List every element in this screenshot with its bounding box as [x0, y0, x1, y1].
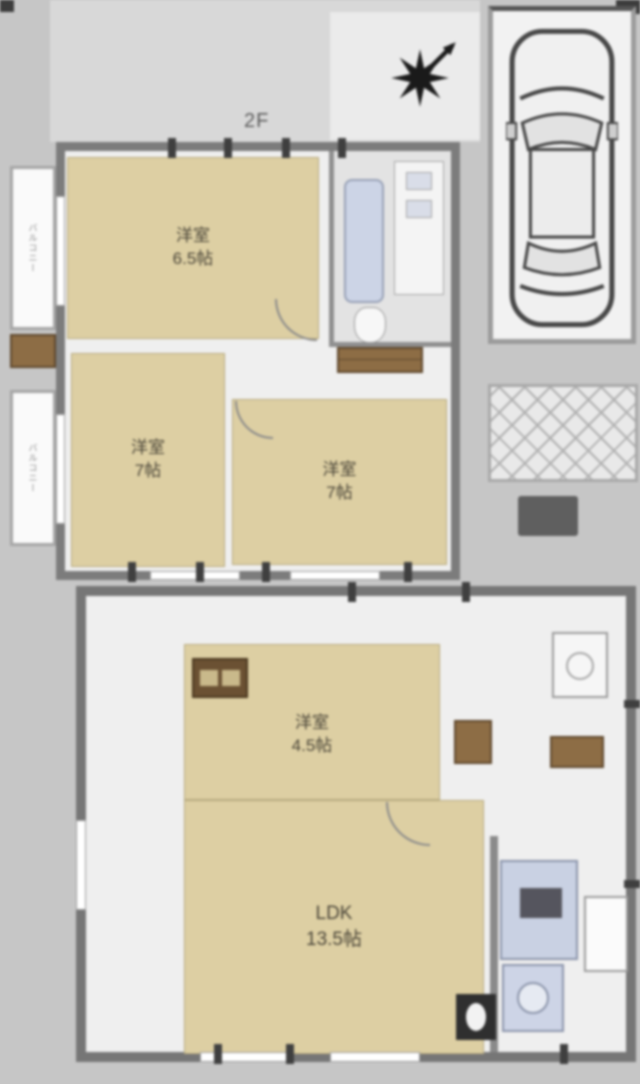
- car-top-view-icon: [506, 25, 618, 331]
- closet: [10, 334, 56, 368]
- floor1-outline: 洋室 4.5帖 LDK 13.5帖: [76, 586, 636, 1062]
- window: [76, 820, 86, 910]
- toilet: [456, 994, 496, 1040]
- compass-north-icon: [382, 40, 458, 116]
- wall-tick: [196, 562, 204, 582]
- cooktop: [520, 888, 562, 918]
- photo-corner: [0, 0, 14, 12]
- wall-tick: [128, 562, 136, 582]
- room-name: 洋室: [323, 459, 357, 482]
- wall-tick: [462, 582, 470, 602]
- balcony-label: バルコニー: [27, 443, 40, 493]
- basin: [406, 200, 432, 218]
- window: [330, 1052, 420, 1062]
- wall-tick: [168, 138, 176, 158]
- wall-tick: [338, 138, 346, 158]
- closet: [192, 658, 248, 698]
- parking-space: [488, 6, 636, 344]
- room-size: 13.5帖: [306, 927, 362, 953]
- washstand: [394, 161, 444, 295]
- wall-tick: [214, 1044, 222, 1064]
- washing-machine: [502, 964, 564, 1032]
- wall-tick: [624, 700, 640, 708]
- bathroom-zone: [329, 151, 451, 347]
- wall-tick: [282, 138, 290, 158]
- wall-tick: [404, 562, 412, 582]
- closet: [337, 347, 423, 373]
- room-bedroom-7a: 洋室 7帖: [71, 353, 225, 567]
- room-size: 7帖: [323, 482, 357, 505]
- wall-tick: [286, 1044, 294, 1064]
- wall-tick: [560, 1044, 568, 1064]
- door: [584, 896, 628, 972]
- room-label: LDK 13.5帖: [306, 901, 362, 952]
- room-size: 4.5帖: [292, 735, 333, 758]
- floor2-outline: 洋室 6.5帖 洋室 7帖 洋室 7帖: [56, 142, 460, 580]
- room-name: 洋室: [131, 437, 165, 460]
- balcony: バルコニー: [10, 166, 56, 330]
- shoe-cabinet: [550, 736, 604, 768]
- room-name: LDK: [306, 901, 362, 927]
- room-size: 7帖: [131, 460, 165, 483]
- balcony-label: バルコニー: [27, 223, 40, 273]
- wall-tick: [262, 562, 270, 582]
- window: [290, 571, 380, 580]
- window: [56, 414, 65, 524]
- room-size: 6.5帖: [173, 248, 214, 271]
- room-label: 洋室 4.5帖: [292, 712, 333, 758]
- wall-tick: [624, 880, 640, 888]
- entrance-approach-tiles: [488, 384, 638, 482]
- floor2-label: 2F: [244, 110, 269, 133]
- room-name: 洋室: [292, 712, 333, 735]
- wall-tick: [348, 582, 356, 602]
- basin: [406, 172, 432, 190]
- washstand: [552, 632, 608, 698]
- floor-plan-canvas: 2F 洋室 6.5帖 洋室 7帖 洋室 7帖: [0, 0, 640, 1084]
- storage: [454, 720, 492, 764]
- room-label: 洋室 7帖: [131, 437, 165, 483]
- window: [56, 196, 65, 306]
- room-ldk: LDK 13.5帖: [184, 800, 484, 1054]
- room-label: 洋室 7帖: [323, 459, 357, 505]
- kitchen-counter: [500, 860, 578, 960]
- bathtub: [344, 179, 384, 303]
- room-label: 洋室 6.5帖: [173, 225, 214, 271]
- entrance-mat: [518, 496, 578, 536]
- toilet: [354, 307, 386, 343]
- window: [150, 571, 240, 580]
- wall-tick: [224, 138, 232, 158]
- room-name: 洋室: [173, 225, 214, 248]
- balcony: バルコニー: [10, 390, 56, 546]
